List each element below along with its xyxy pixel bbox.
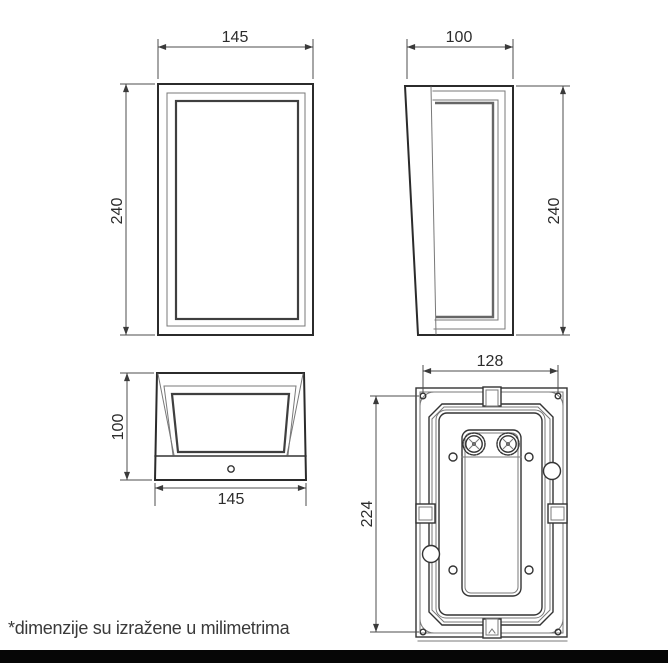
- front-outer-frame: [158, 84, 313, 335]
- side-height-dimension: 240: [516, 86, 570, 335]
- terminal-screw-left: [463, 433, 485, 455]
- top-glass-opening: [172, 394, 289, 452]
- cable-entry-tab-bottom: [483, 619, 501, 638]
- side-glass-panel: [435, 103, 493, 317]
- back-gasket-inner: [439, 413, 542, 615]
- drawing-canvas: 145 240 100 240: [0, 0, 668, 668]
- back-view: 128 224: [359, 353, 567, 641]
- front-height-label: 240: [109, 198, 126, 225]
- cable-entry-tab-right: [548, 504, 567, 523]
- side-view: 100 240: [405, 29, 570, 335]
- front-width-label: 145: [222, 29, 249, 46]
- front-glass-frame: [176, 101, 298, 319]
- plate-hole: [449, 566, 457, 574]
- back-height-label: 224: [359, 501, 376, 528]
- back-height-dimension: 224: [359, 396, 419, 632]
- side-depth-dimension: 100: [407, 29, 513, 79]
- side-outer-contour: [405, 86, 513, 335]
- back-chamfer-frame-inner: [432, 407, 550, 622]
- plate-hole: [449, 453, 457, 461]
- plate-hole: [525, 566, 533, 574]
- plate-hole: [525, 453, 533, 461]
- mounting-hole-bottom-left: [420, 629, 426, 635]
- back-width-label: 128: [477, 353, 504, 370]
- side-height-label: 240: [546, 198, 563, 225]
- side-front-edge: [431, 87, 436, 334]
- back-chamfer-frame-outer: [429, 404, 553, 625]
- side-depth-label: 100: [446, 29, 473, 46]
- tab-inner: [486, 390, 498, 406]
- top-view: 100 145: [110, 373, 306, 508]
- knockout-hole-right: [544, 463, 561, 480]
- top-width-dimension: 145: [155, 483, 306, 508]
- units-footnote: *dimenzije su izražene u milimetrima: [8, 618, 289, 639]
- top-screw-hole: [228, 466, 234, 472]
- bottom-black-bar: [0, 650, 668, 663]
- technical-drawing-page: 145 240 100 240: [0, 0, 668, 668]
- top-recess-outer: [164, 386, 296, 455]
- top-depth-label: 100: [110, 414, 127, 441]
- tab-inner: [551, 507, 564, 520]
- side-recess-inner: [433, 100, 498, 320]
- top-depth-dimension: 100: [110, 373, 154, 480]
- top-outer-contour: [155, 373, 306, 480]
- front-view: 145 240: [109, 29, 313, 335]
- cable-entry-tab-left: [416, 504, 435, 523]
- front-width-dimension: 145: [158, 29, 313, 79]
- tab-inner: [419, 507, 432, 520]
- back-width-dimension: 128: [423, 353, 558, 392]
- front-mid-frame: [167, 93, 305, 326]
- back-gasket-outer: [436, 410, 545, 618]
- knockout-hole-left: [423, 546, 440, 563]
- corner-arc: [420, 619, 434, 633]
- mounting-hole-top-right: [555, 393, 561, 399]
- cable-entry-tab-top: [483, 387, 501, 406]
- tab-inner: [486, 619, 498, 635]
- terminal-screw-right: [497, 433, 519, 455]
- top-width-label: 145: [218, 491, 245, 508]
- front-height-dimension: 240: [109, 84, 155, 335]
